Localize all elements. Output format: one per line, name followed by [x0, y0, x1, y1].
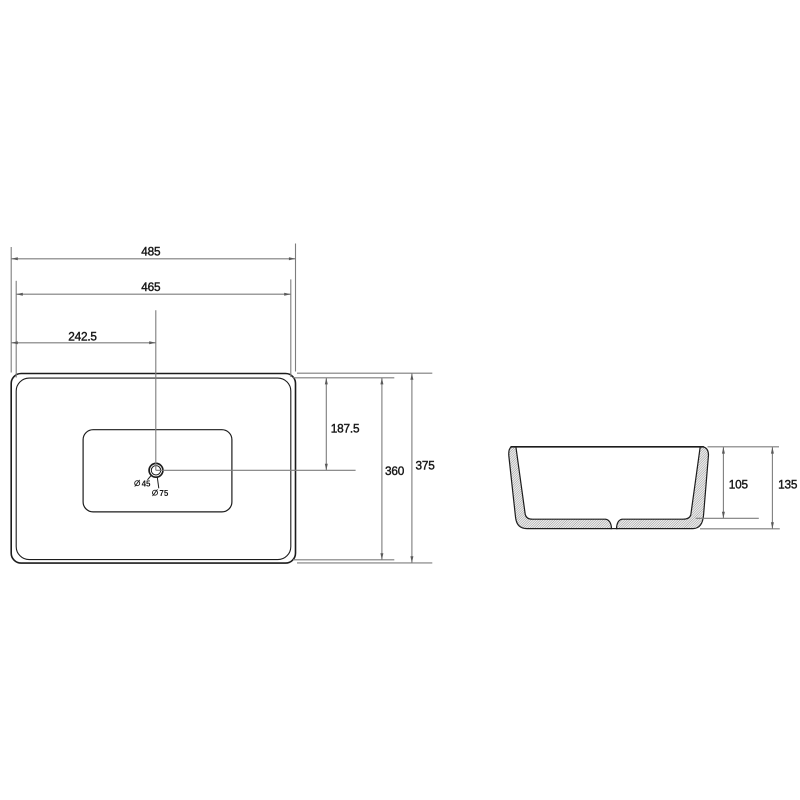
svg-text:465: 465	[141, 280, 161, 294]
svg-text:242.5: 242.5	[68, 329, 97, 343]
svg-text:135: 135	[778, 478, 798, 492]
svg-text:375: 375	[416, 459, 436, 473]
svg-text:105: 105	[729, 478, 749, 492]
svg-text:485: 485	[141, 244, 161, 258]
svg-text:45: 45	[142, 479, 151, 488]
svg-text:187.5: 187.5	[331, 421, 360, 435]
svg-text:360: 360	[385, 464, 405, 478]
svg-text:75: 75	[159, 489, 168, 498]
